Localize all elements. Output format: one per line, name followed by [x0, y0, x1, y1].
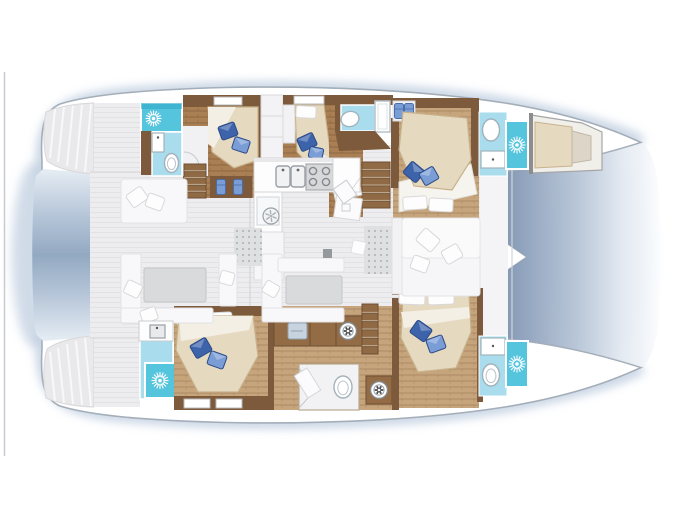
- salon-rug: [234, 228, 262, 266]
- white-pillow: [429, 198, 454, 212]
- galley-tall-locker: [261, 95, 283, 159]
- faucet-dot: [157, 136, 159, 138]
- stbd-mid-stairs: [362, 304, 378, 354]
- hull-window: [184, 399, 210, 408]
- faucet-dot: [282, 169, 285, 172]
- fwd-seating-panel: [392, 218, 402, 294]
- port-aft-sink: [152, 133, 164, 152]
- side-table: [351, 240, 366, 255]
- washing-machine-icon: [340, 323, 357, 340]
- shower-sun-icon: [146, 111, 162, 127]
- hatch-fan-icon: [263, 208, 279, 224]
- port-aft-vanity-wall: [141, 131, 152, 175]
- stern-gap-water: [32, 169, 90, 341]
- port-fwd-wall-left: [391, 118, 399, 188]
- hull-window: [216, 399, 242, 408]
- shower-sun-icon: [152, 372, 169, 389]
- port-mid-wardrobe: [283, 105, 295, 143]
- salon-bench-top: [278, 258, 344, 272]
- port-mid-stairs: [362, 162, 390, 208]
- salon-bench-bottom: [262, 308, 344, 322]
- towel-icon: [217, 180, 226, 195]
- washing-machine-icon: [371, 382, 388, 399]
- white-pillow: [296, 105, 317, 118]
- cockpit-table: [144, 268, 206, 302]
- shower-sun-icon: [509, 137, 526, 154]
- trampoline-net-area: [508, 143, 660, 368]
- white-pillow: [219, 270, 236, 286]
- stbd-corridor-wall-right: [392, 298, 399, 410]
- toilet-icon: [165, 154, 179, 173]
- floor-plan-svg: [0, 0, 680, 510]
- bow-berth-wall: [529, 113, 533, 174]
- salon-rug: [364, 226, 394, 274]
- faucet-dot: [156, 327, 158, 329]
- port-fwd-wall-right: [471, 98, 479, 176]
- faucet-dot: [492, 345, 494, 347]
- bow-berth-bed: [535, 122, 572, 168]
- toilet-icon: [483, 364, 500, 386]
- salon-speaker-box: [323, 249, 332, 258]
- toilet-icon: [334, 376, 352, 398]
- bow-berth-pillow: [572, 131, 591, 163]
- foredeck-walkway: [480, 150, 508, 360]
- basin-icon: [483, 119, 500, 141]
- towel-icon: [234, 180, 243, 195]
- yacht-layout-image: [0, 0, 680, 510]
- faucet-dot: [297, 169, 300, 172]
- shower-tray: [375, 101, 390, 132]
- deck-hatch: [294, 96, 324, 104]
- port-aft-shower-tile: [141, 103, 182, 109]
- shower-sun-icon: [509, 356, 526, 373]
- faucet-dot: [492, 158, 494, 160]
- deck-hatch: [214, 97, 242, 105]
- white-pillow: [403, 196, 428, 211]
- salon-table: [286, 276, 342, 304]
